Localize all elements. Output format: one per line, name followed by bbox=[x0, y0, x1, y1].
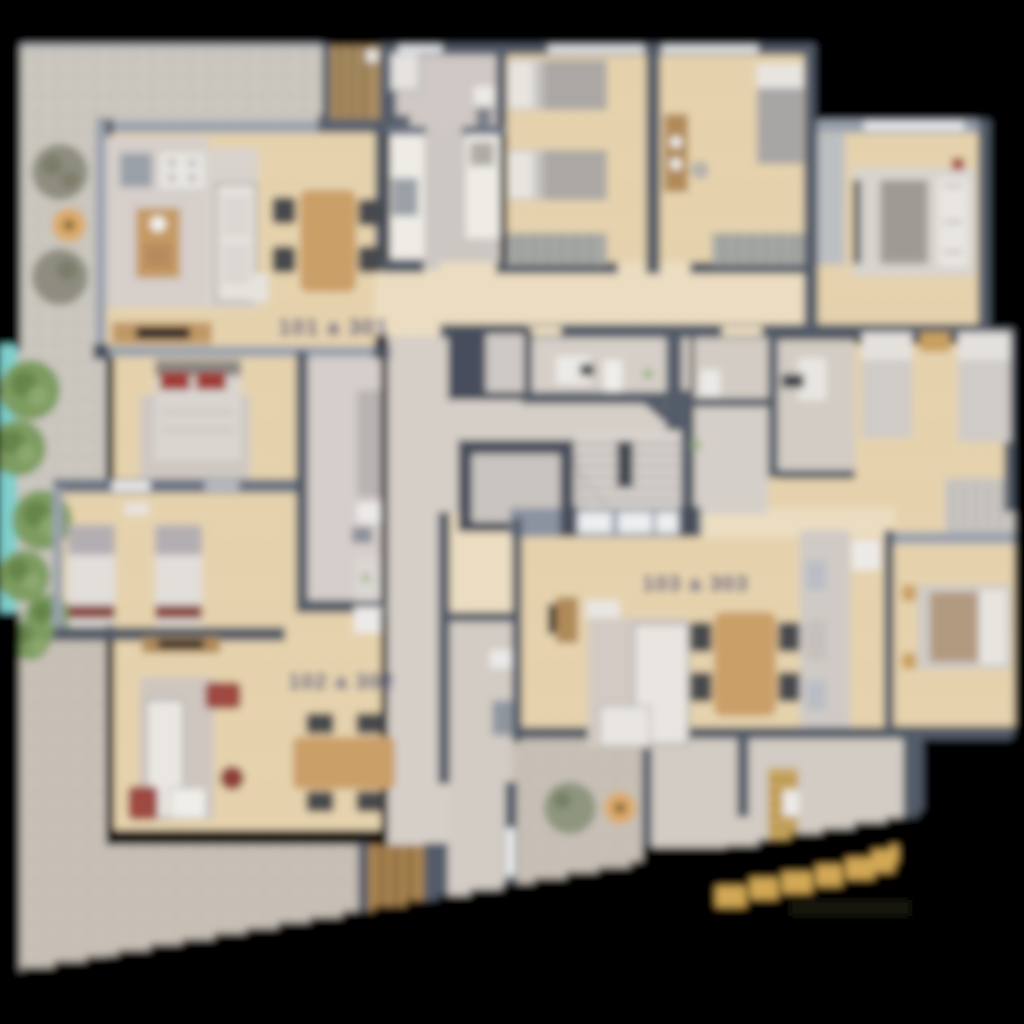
svg-text:103 a 303: 103 a 303 bbox=[642, 571, 749, 596]
svg-text:102 a 302: 102 a 302 bbox=[288, 669, 395, 694]
svg-text:101 a 301: 101 a 301 bbox=[278, 314, 389, 340]
